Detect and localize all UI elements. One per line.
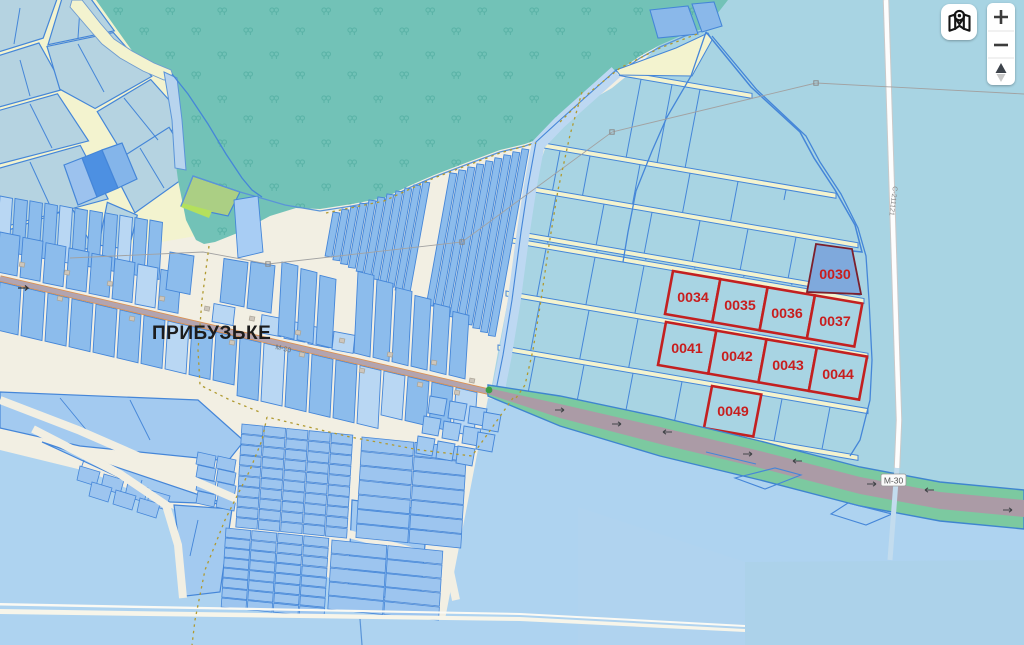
svg-text:0049: 0049: [717, 404, 749, 420]
svg-text:0030: 0030: [819, 267, 851, 283]
svg-text:0041: 0041: [671, 341, 703, 357]
svg-text:0043: 0043: [772, 358, 804, 374]
svg-text:0034: 0034: [677, 290, 709, 306]
svg-text:0042: 0042: [721, 349, 753, 365]
svg-text:0037: 0037: [819, 314, 851, 330]
svg-text:М-30: М-30: [884, 476, 904, 486]
svg-text:0036: 0036: [771, 306, 803, 322]
svg-text:0035: 0035: [724, 298, 756, 314]
svg-text:ПРИБУЗЬКЕ: ПРИБУЗЬКЕ: [152, 323, 271, 344]
svg-text:0044: 0044: [822, 367, 854, 383]
